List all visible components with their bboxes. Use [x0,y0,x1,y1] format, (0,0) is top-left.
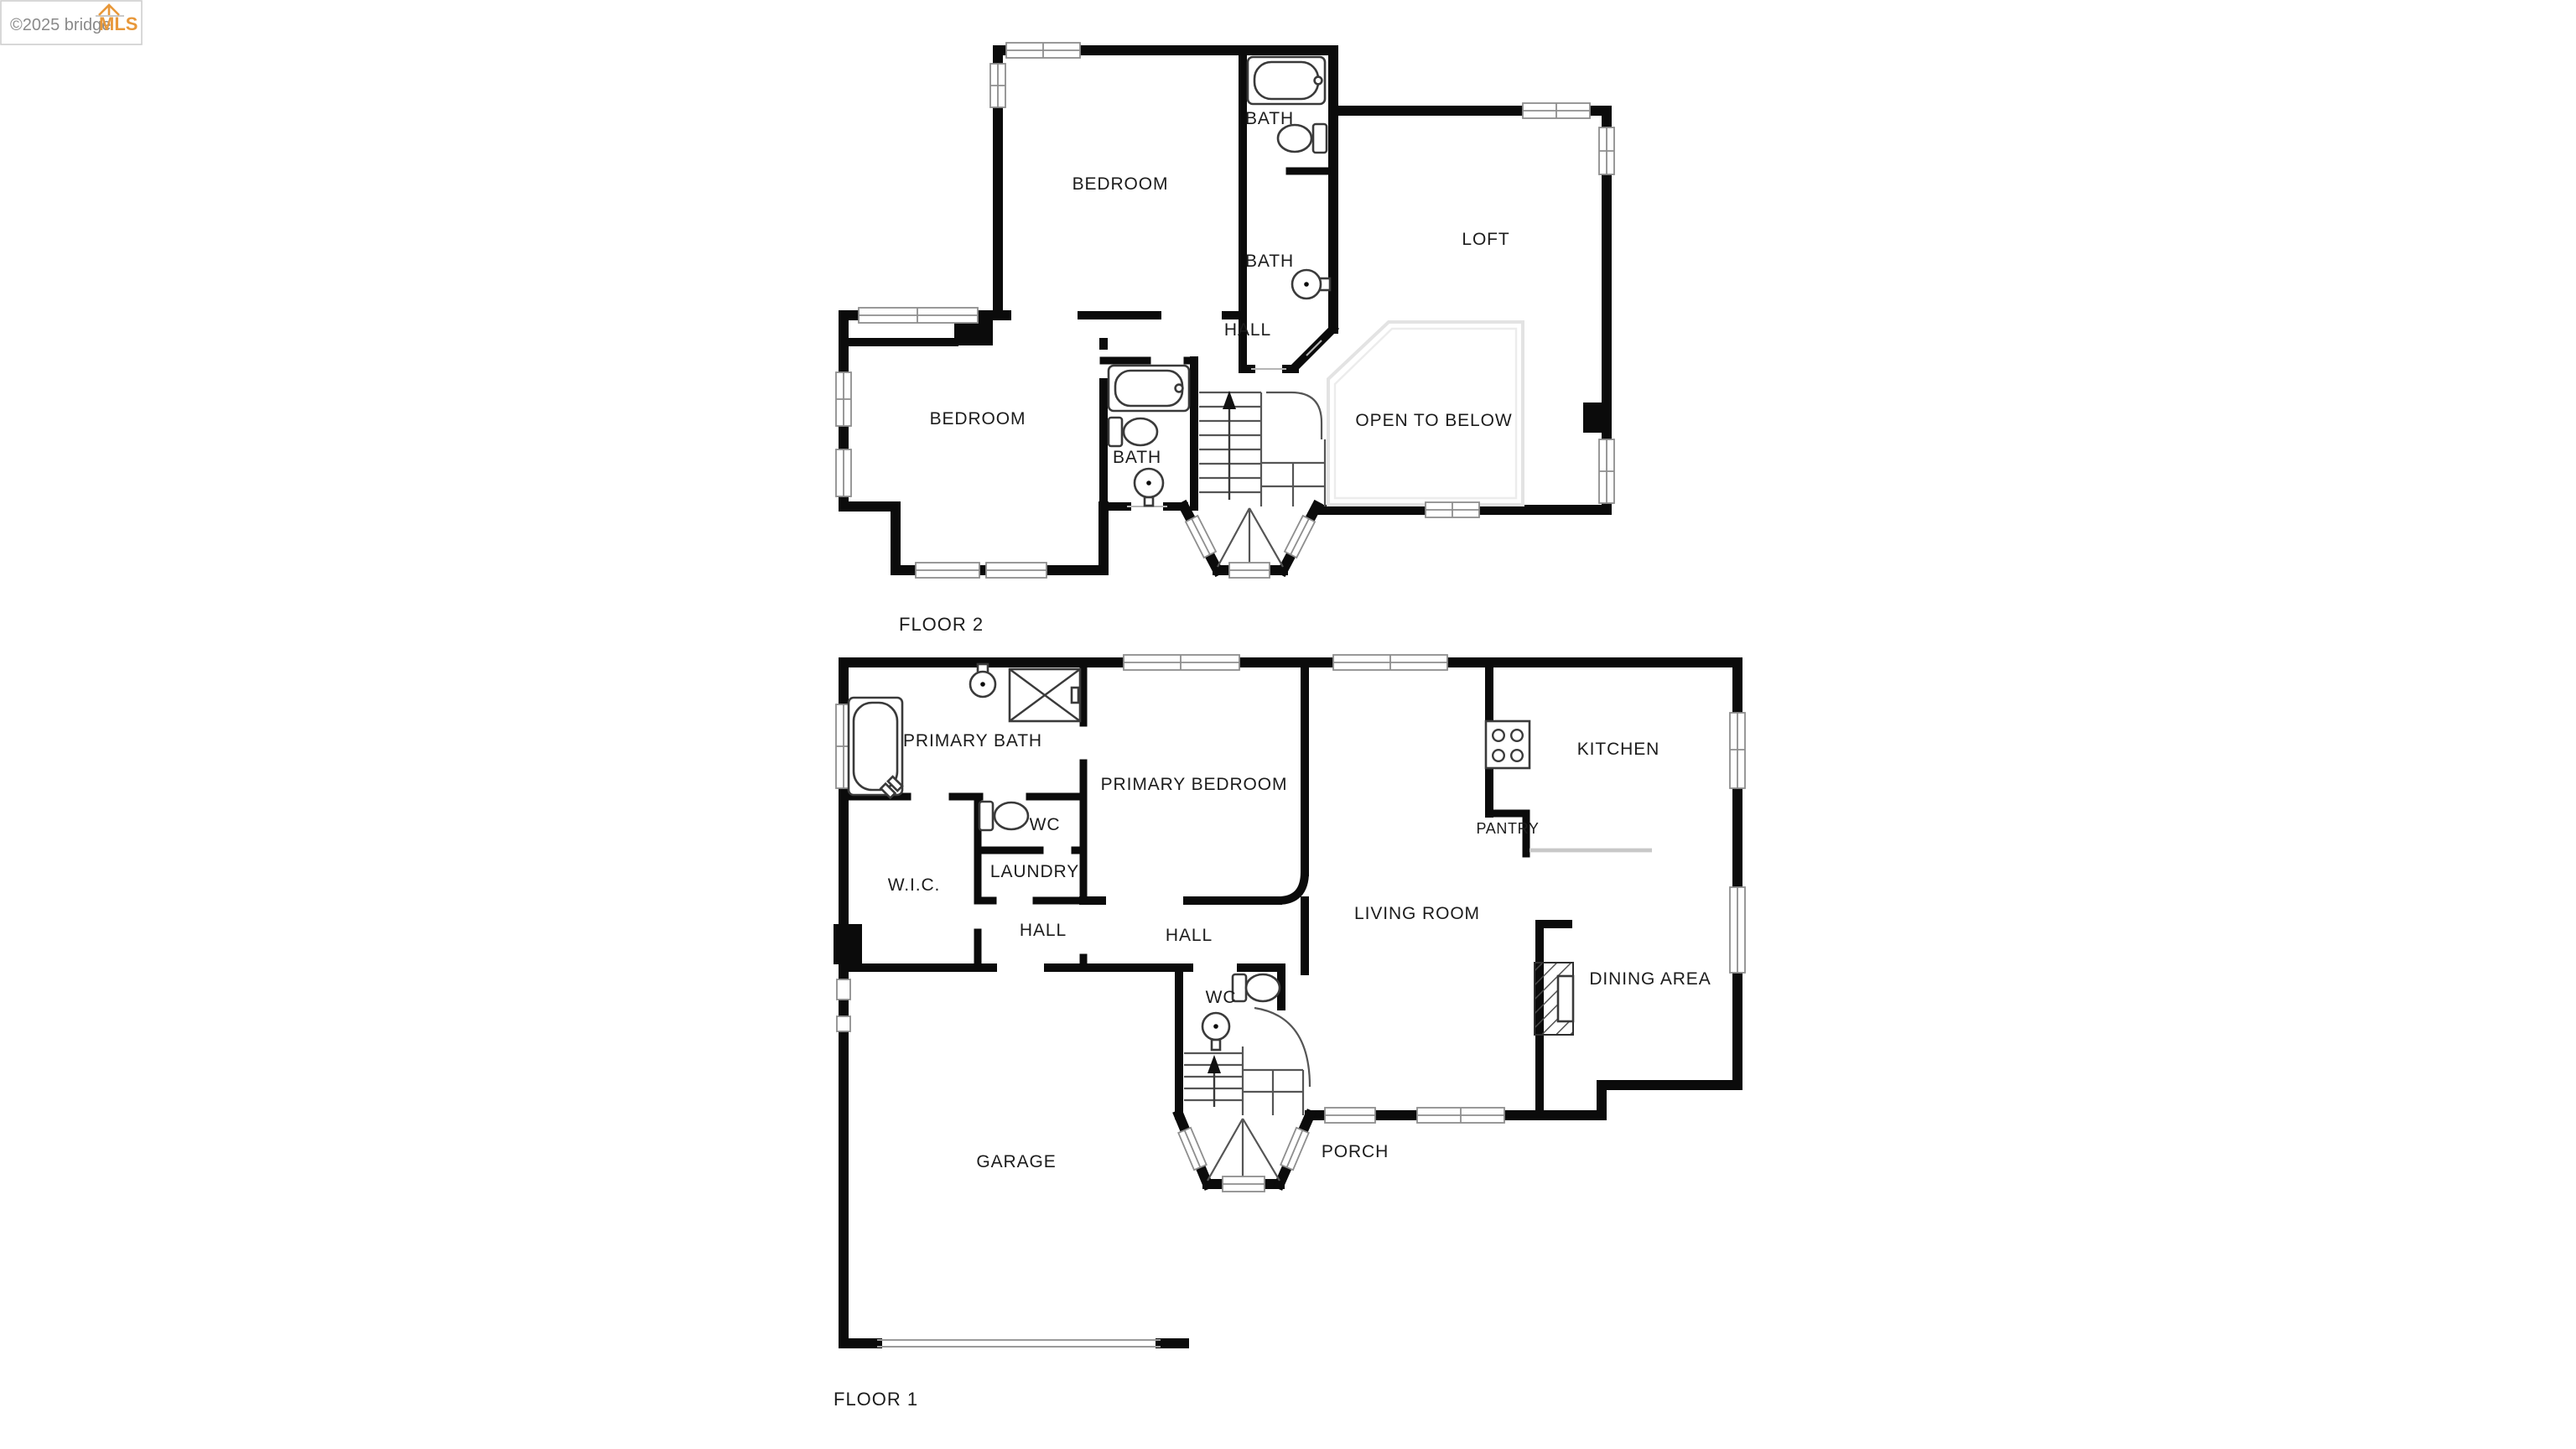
sink-icon [1292,270,1330,299]
window-icon [1730,887,1745,973]
toilet-icon [1109,418,1157,446]
floor2-title: FLOOR 2 [899,614,984,635]
window-icon [1285,516,1315,558]
window-icon [1223,1176,1265,1192]
staircase-icon [1199,391,1325,506]
window-icon [859,308,978,323]
room-label-loft: LOFT [1462,230,1509,249]
window-icon [1178,1128,1206,1170]
bay-window-floor2 [1218,508,1283,570]
room-label-wc-lower: WC [1206,988,1237,1007]
bathtub-icon [849,698,902,798]
window-icon [1599,127,1614,174]
window-icon [986,563,1046,578]
toilet-icon [1233,974,1280,1001]
bay-entry-floor1 [1207,1119,1280,1184]
window-icon [1006,43,1080,58]
garage-door [877,1340,1161,1347]
stove-icon [1486,721,1529,768]
floor1-plan: PRIMARY BATH PRIMARY BEDROOM KITCHEN PAN… [834,655,1745,1410]
room-label-kitchen: KITCHEN [1577,740,1659,759]
window-icon [1730,713,1745,788]
bathtub-icon [1109,366,1189,411]
floorplan-image: BEDROOM BATH BATH LOFT HALL BEDROOM BATH… [0,0,2576,1449]
toilet-icon [1278,124,1327,153]
room-label-pantry: PANTRY [1477,820,1540,837]
room-label-primary-bedroom: PRIMARY BEDROOM [1101,775,1288,794]
fireplace-icon [1535,963,1573,1035]
room-label-garage: GARAGE [976,1152,1056,1171]
chimney-stub [1583,402,1607,433]
window-icon [916,563,979,578]
window-icon [836,449,851,496]
room-label-wic: W.I.C. [888,875,941,895]
watermark-copyright: ©2025 bridge [10,16,111,34]
stairs-up-arrow [1223,391,1236,409]
sink-icon [970,664,995,697]
window-icon [1599,439,1614,503]
room-label-bath-lower: BATH [1113,448,1161,467]
window-icon [1426,502,1479,517]
floor2-plan: BEDROOM BATH BATH LOFT HALL BEDROOM BATH… [836,43,1614,635]
room-label-porch: PORCH [1322,1142,1389,1161]
window-icon [1186,516,1216,558]
sink-icon [1202,1013,1229,1050]
room-label-living-room: LIVING ROOM [1354,904,1480,923]
room-label-laundry: LAUNDRY [990,862,1079,881]
room-label-open-to-below: OPEN TO BELOW [1355,411,1512,430]
window-icon [1523,103,1590,118]
room-label-bath-top: BATH [1245,109,1294,128]
room-label-hall-floor2: HALL [1224,320,1271,340]
window-icon [836,372,851,426]
window-icon [1229,563,1270,578]
window-icon [1333,655,1447,670]
room-label-wc-upper: WC [1030,815,1061,834]
room-label-hall-right: HALL [1166,926,1213,945]
toilet-icon [979,802,1028,830]
room-label-bedroom-top: BEDROOM [1072,174,1169,194]
window-icon [1124,655,1239,670]
room-label-bath-middle: BATH [1245,252,1294,271]
bathtub-icon [1248,57,1325,104]
floor1-walls [834,662,1737,1343]
sink-icon [1135,469,1163,506]
room-label-dining-area: DINING AREA [1589,969,1711,989]
floorplan-canvas: BEDROOM BATH BATH LOFT HALL BEDROOM BATH… [0,0,2576,1449]
floor1-title: FLOOR 1 [834,1389,918,1410]
watermark: ©2025 bridge MLS [1,1,142,44]
window-icon [837,979,850,1000]
shower-icon [1010,669,1080,721]
room-label-bedroom-left: BEDROOM [930,409,1026,428]
window-icon [837,1016,850,1031]
window-icon [1417,1108,1504,1123]
window-icon [1325,1108,1375,1123]
room-label-hall-left: HALL [1020,921,1067,940]
window-icon [1280,1128,1308,1170]
window-icon [990,64,1005,107]
room-label-primary-bath: PRIMARY BATH [903,731,1042,750]
